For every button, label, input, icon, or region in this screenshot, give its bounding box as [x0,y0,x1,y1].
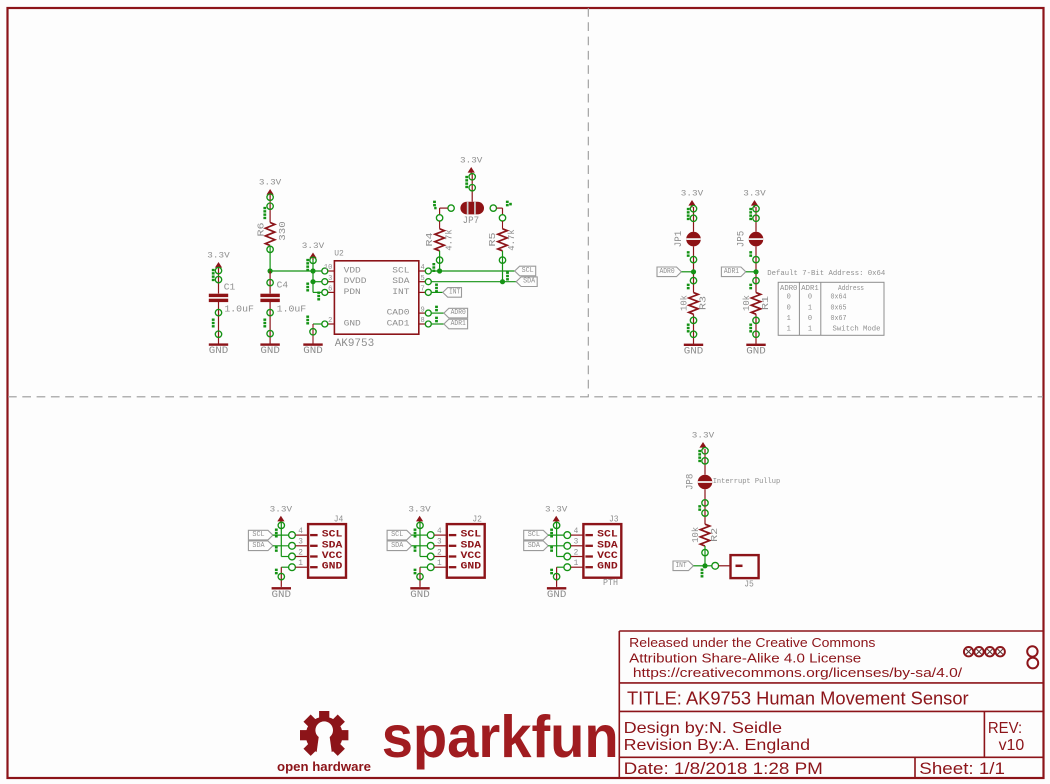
svg-text:3.3V: 3.3V [743,189,766,199]
svg-text:8: 8 [421,317,425,325]
svg-text:4: 4 [437,528,442,536]
svg-text:1: 1 [808,326,812,334]
svg-text:3.3V: 3.3V [259,178,282,188]
svg-text:SCL: SCL [322,530,343,541]
svg-text:3.3V: 3.3V [408,504,431,514]
svg-text:JP5: JP5 [737,231,748,248]
svg-text:9: 9 [421,306,425,314]
svg-text:3: 3 [437,539,442,547]
svg-text:U2: U2 [334,249,344,259]
svg-text:10k: 10k [690,526,701,542]
svg-text:JP8: JP8 [686,474,697,491]
svg-text:GND: GND [547,590,567,601]
svg-text:SDA: SDA [322,540,343,551]
svg-text:0x67: 0x67 [831,315,847,323]
svg-text:GND: GND [410,590,430,601]
svg-text:SCL: SCL [392,267,409,276]
svg-text:3.3V: 3.3V [207,251,230,261]
svg-text:0: 0 [808,315,812,323]
svg-text:ADR1: ADR1 [451,320,466,328]
svg-text:3.3V: 3.3V [302,241,325,251]
svg-text:GND: GND [322,562,343,573]
svg-text:10k: 10k [741,295,752,311]
svg-text:GND: GND [746,346,766,357]
svg-text:REV:: REV: [988,720,1022,737]
svg-text:GND: GND [461,562,482,573]
svg-text:0: 0 [787,304,791,312]
svg-text:PDN: PDN [344,288,361,297]
svg-text:SCL: SCL [252,531,264,539]
svg-text:3.3V: 3.3V [681,189,704,199]
svg-text:Sheet: 1/1: Sheet: 1/1 [919,759,1005,778]
svg-text:https://creativecommons.org/li: https://creativecommons.org/licenses/by-… [633,665,963,680]
svg-text:GND: GND [597,562,618,573]
svg-text:4: 4 [574,528,579,536]
svg-text:SDA: SDA [461,540,482,551]
svg-text:330: 330 [277,221,288,241]
svg-text:Released under the Creative Co: Released under the Creative Commons [629,635,875,650]
svg-text:Interrupt Pullup: Interrupt Pullup [713,478,781,486]
svg-text:4: 4 [421,264,425,272]
svg-text:1: 1 [574,560,579,568]
svg-text:10: 10 [324,264,332,272]
svg-text:Switch Mode: Switch Mode [833,326,881,334]
svg-text:TITLE: AK9753 Human Movement S: TITLE: AK9753 Human Movement Sensor [627,688,969,709]
svg-text:GND: GND [272,590,292,601]
svg-text:Default 7-Bit Address: 0x64: Default 7-Bit Address: 0x64 [767,270,886,278]
svg-text:6: 6 [328,286,332,294]
svg-text:3.3V: 3.3V [692,431,715,441]
svg-text:1: 1 [787,315,791,323]
svg-text:JP7: JP7 [463,216,480,227]
svg-text:R5: R5 [487,232,498,247]
svg-text:J3: J3 [609,514,619,524]
svg-text:CAD0: CAD0 [387,309,410,318]
svg-text:3.3V: 3.3V [545,504,568,514]
svg-text:ADR1: ADR1 [724,268,739,276]
svg-text:ADR0: ADR0 [780,285,797,293]
svg-text:SCL: SCL [528,531,540,539]
svg-text:3.3V: 3.3V [460,156,483,166]
svg-text:ADR0: ADR0 [659,268,674,276]
svg-text:ADR0: ADR0 [451,309,466,317]
svg-text:1: 1 [808,304,812,312]
svg-text:2: 2 [328,317,332,325]
svg-text:J2: J2 [472,514,482,524]
svg-text:Date: 1/8/2018 1:28 PM: Date: 1/8/2018 1:28 PM [624,759,823,778]
svg-text:1.0uF: 1.0uF [277,303,307,314]
svg-text:J5: J5 [744,579,754,589]
svg-text:SDA: SDA [391,542,404,550]
svg-text:Design by:N. Seidle: Design by:N. Seidle [624,720,783,737]
svg-text:CAD1: CAD1 [387,320,410,329]
svg-text:3: 3 [328,275,332,283]
svg-text:2: 2 [437,549,442,557]
svg-text:R1: R1 [760,295,771,310]
svg-text:Attribution Share-Alike 4.0 Li: Attribution Share-Alike 4.0 License [629,651,861,666]
svg-text:SDA: SDA [597,540,618,551]
svg-text:Address: Address [838,285,864,293]
svg-text:PTH: PTH [603,578,618,588]
svg-text:0: 0 [787,294,791,302]
svg-text:SDA: SDA [523,278,536,286]
svg-text:SDA: SDA [392,277,409,286]
svg-text:VCC: VCC [597,551,618,562]
svg-text:GND: GND [344,320,361,329]
svg-text:GND: GND [260,346,280,357]
svg-text:v10: v10 [999,737,1025,754]
svg-text:3: 3 [298,539,303,547]
svg-text:3: 3 [574,539,579,547]
svg-text:SDA: SDA [528,542,541,550]
svg-text:7: 7 [421,286,425,294]
svg-text:VCC: VCC [461,551,482,562]
svg-text:10k: 10k [678,295,689,311]
svg-text:GND: GND [684,346,704,357]
svg-text:GND: GND [209,346,229,357]
svg-text:GND: GND [303,346,323,357]
svg-text:SCL: SCL [391,531,403,539]
svg-text:R6: R6 [255,222,266,237]
svg-text:VCC: VCC [322,551,343,562]
svg-text:2: 2 [574,549,579,557]
svg-text:sparkfun: sparkfun [382,703,619,770]
svg-text:C1: C1 [224,282,236,293]
svg-text:SCL: SCL [461,530,482,541]
svg-text:1: 1 [298,560,303,568]
svg-text:INT: INT [675,562,686,570]
svg-text:SCL: SCL [522,267,534,275]
svg-text:R3: R3 [698,295,709,310]
svg-text:SDA: SDA [252,542,265,550]
svg-text:0x64: 0x64 [831,294,847,302]
svg-text:3.3V: 3.3V [270,504,293,514]
svg-text:J4: J4 [334,514,344,524]
svg-text:DVDD: DVDD [344,277,367,286]
svg-text:SCL: SCL [597,530,618,541]
svg-text:5: 5 [421,275,425,283]
svg-text:open hardware: open hardware [277,759,371,774]
svg-text:4.7k: 4.7k [506,229,517,251]
svg-text:0x65: 0x65 [831,304,847,312]
svg-text:AK9753: AK9753 [335,338,375,350]
svg-text:4.7k: 4.7k [443,229,454,251]
svg-text:R4: R4 [424,232,435,247]
svg-text:0: 0 [808,294,812,302]
svg-text:R2: R2 [709,528,720,542]
svg-text:JP1: JP1 [674,231,685,248]
svg-text:4: 4 [298,528,303,536]
svg-text:INT: INT [392,288,409,297]
svg-text:Revision By:A. England: Revision By:A. England [624,737,810,754]
svg-text:1: 1 [437,560,442,568]
svg-text:INT: INT [449,288,460,296]
svg-text:1: 1 [787,326,791,334]
svg-text:C4: C4 [277,279,289,290]
svg-text:1.0uF: 1.0uF [224,303,254,314]
svg-text:ADR1: ADR1 [801,285,818,293]
svg-text:2: 2 [298,549,303,557]
svg-text:VDD: VDD [344,267,361,276]
